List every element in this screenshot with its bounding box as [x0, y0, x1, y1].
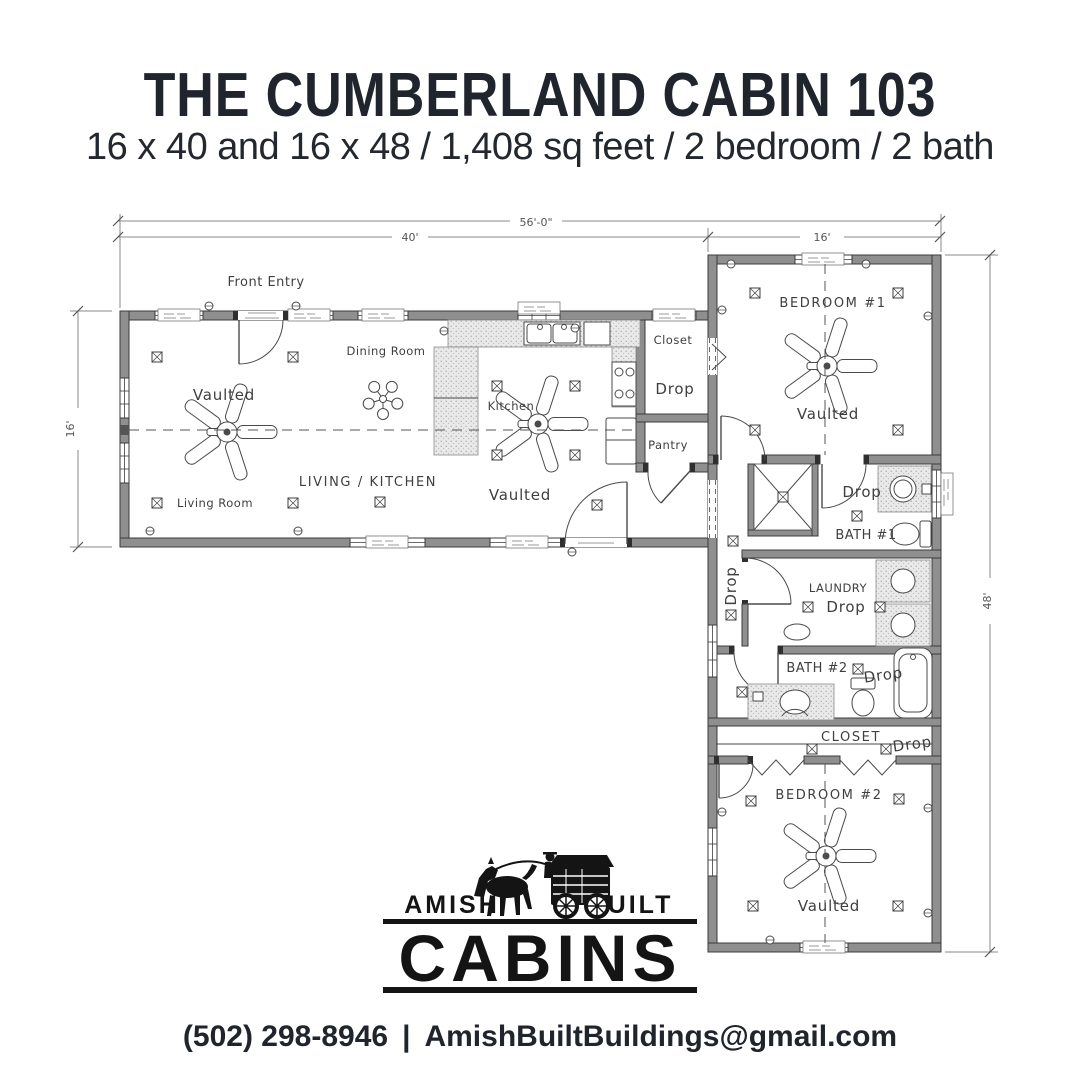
label-front-entry: Front Entry: [227, 275, 304, 290]
dim-wing-width: 16': [813, 231, 830, 244]
pantry-door: [643, 463, 695, 503]
label-bedroom-2: BEDROOM #2: [775, 788, 882, 803]
window: [155, 309, 203, 321]
label-vaulted-kitchen: Vaulted: [489, 486, 551, 504]
bath1-toilet: [891, 521, 931, 547]
logo-word-cabins: CABINS: [398, 921, 681, 995]
refrigerator: [606, 418, 636, 464]
front-entry-door: [233, 311, 288, 364]
label-vaulted-living: Vaulted: [193, 386, 255, 404]
window: [358, 309, 408, 321]
dim-main-depth: 16': [64, 420, 77, 437]
logo-bar-bottom: [383, 987, 697, 993]
label-vaulted-bedroom2: Vaulted: [798, 897, 860, 915]
contact-footer: (502) 298-8946|AmishBuiltBuildings@gmail…: [0, 1020, 1080, 1054]
floor-plan-canvas: 56'-0" 40' 16' 16' 48': [0, 0, 1080, 1080]
window: [708, 828, 717, 876]
laundry-door: [742, 558, 791, 604]
ceiling-fan-symbol: [782, 806, 876, 905]
label-laundry: LAUNDRY: [809, 581, 868, 595]
label-closet-2: CLOSET: [821, 730, 881, 745]
label-bedroom-1: BEDROOM #1: [779, 296, 886, 311]
window: [350, 536, 425, 548]
window: [795, 253, 852, 265]
email-address: AmishBuiltBuildings@gmail.com: [424, 1020, 897, 1053]
label-vaulted-bedroom1: Vaulted: [797, 405, 859, 423]
label-closet: Closet: [654, 333, 693, 347]
window: [518, 302, 560, 320]
logo-word-amish: AMISH: [404, 891, 500, 919]
separator: |: [402, 1020, 410, 1053]
window: [708, 625, 717, 677]
window: [490, 536, 565, 548]
bath1-vanity: [878, 466, 931, 512]
bedroom1-door: [713, 416, 767, 464]
label-bath-1: BATH #1: [835, 528, 896, 543]
label-pantry: Pantry: [648, 438, 688, 452]
bath2-vanity: [748, 684, 834, 720]
label-drop-closet2: Drop: [892, 732, 933, 755]
phone-number: (502) 298-8946: [183, 1020, 388, 1053]
dishwasher: [584, 322, 610, 345]
label-drop-laundry: Drop: [826, 598, 865, 616]
label-living-kitchen: LIVING / KITCHEN: [299, 475, 437, 490]
laundry-tub: [784, 624, 810, 640]
label-dining-room: Dining Room: [346, 344, 425, 358]
dim-wing-depth: 48': [981, 592, 994, 609]
amish-built-cabins-logo: AMISH BUILT CABINS: [383, 852, 697, 995]
window: [932, 470, 953, 518]
window: [285, 309, 333, 321]
label-drop-closet: Drop: [655, 380, 694, 398]
label-kitchen: Kitchen: [488, 399, 535, 413]
label-drop-hall: Drop: [722, 566, 740, 605]
window: [800, 941, 848, 953]
floor-plan: 56'-0" 40' 16' 16' 48': [64, 214, 998, 957]
window: [120, 378, 129, 418]
dim-main-width: 40': [401, 231, 418, 244]
window: [120, 443, 129, 483]
label-living-room: Living Room: [177, 496, 253, 510]
ceiling-fan-symbol: [783, 316, 877, 415]
dim-overall-width: 56'-0": [519, 216, 552, 229]
label-bath-2: BATH #2: [786, 661, 847, 676]
window: [652, 309, 696, 321]
dining-light-symbol: [363, 381, 403, 419]
back-door: [560, 482, 632, 547]
label-drop-bath1: Drop: [842, 483, 881, 501]
bathtub: [894, 648, 932, 718]
range: [612, 362, 636, 406]
